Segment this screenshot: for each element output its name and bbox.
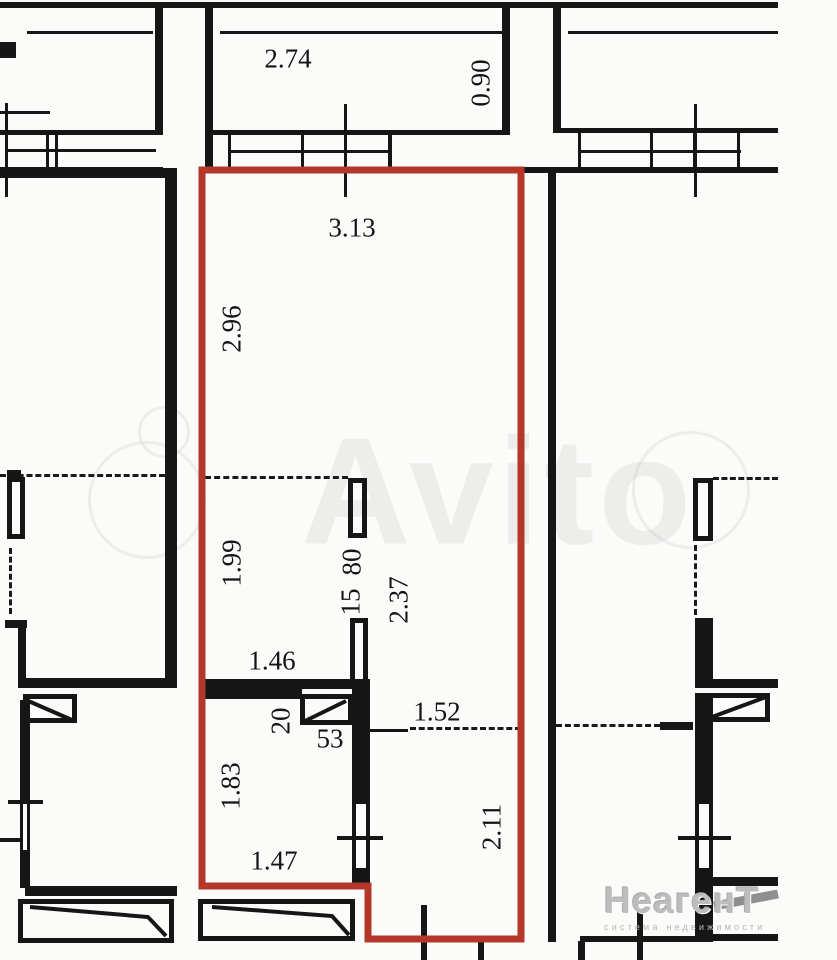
wall-segment [502,2,510,133]
dim-label-room-height-199: 1.99 [219,539,246,586]
dim-label-width-147: 1.47 [250,848,297,875]
dim-label-height-237: 2.37 [386,576,413,623]
window-frame [560,128,778,133]
corner-wedge [0,42,16,58]
window-frame [46,130,49,172]
door-frame [707,693,770,722]
window-frame [301,133,304,172]
wall-segment [165,178,177,688]
wall-segment [352,868,370,886]
dimension-tick [0,838,20,842]
wall-segment [27,31,153,34]
wall-segment [568,31,778,34]
partition-dashed-line [694,545,697,615]
door-frame [23,694,77,723]
window-frame [228,150,391,153]
dimension-tick [368,729,408,732]
dim-label-width-146: 1.46 [248,648,295,675]
wall-segment [0,2,778,8]
dim-label-room-width-313: 3.13 [328,215,375,242]
dim-label-room-height-296: 2.96 [219,305,246,352]
wall-segment [713,679,778,688]
dimension-tick [337,836,383,840]
window-frame [693,478,713,541]
agency-watermark-tagline: система недвижимости [604,922,814,932]
dimension-tick [478,941,484,960]
wall-segment [695,618,713,688]
wall-segment [20,700,30,804]
dim-label-height-211: 2.11 [479,804,506,850]
wall-segment [0,168,177,178]
dim-label-width-152: 1.52 [413,699,460,726]
window-frame [650,133,653,172]
dim-label-depth-090: 0.90 [468,59,495,106]
dimension-tick [678,836,731,840]
wall-segment [350,618,368,688]
avito-logo-circle-small [138,406,190,458]
wall-segment [713,934,778,941]
dimension-tick [578,941,585,960]
dimension-dashed-line [410,727,521,730]
wall-segment [390,167,560,173]
window-frame [578,150,741,153]
wall-segment [660,722,693,730]
window-frame [20,804,23,850]
partition-dashed-line [205,476,348,479]
dim-label-door-width-80: 80 [339,549,366,576]
dim-label-door-width-53: 53 [317,726,344,753]
agency-watermark-name: НеагенТ [604,882,814,919]
wall-segment [352,679,370,804]
dim-label-wall-15: 15 [338,589,365,616]
window-frame [560,167,778,173]
window-frame [27,804,30,850]
window-frame [7,477,25,539]
dimension-tick [344,104,347,197]
balcony-window [18,899,174,943]
dimension-tick [5,103,8,197]
floor-plan-canvas: Avito [0,0,837,960]
window-frame [348,478,367,538]
dimension-tick [694,104,697,197]
window-frame [737,133,740,172]
balcony-window [198,899,355,941]
window-frame [8,149,156,152]
window-frame [578,133,581,172]
dimension-tick [421,905,427,960]
wall-segment [25,886,177,896]
window-frame [55,130,58,172]
wall-segment [20,850,30,888]
partition-dashed-line [556,724,660,727]
dim-label-height-183: 1.83 [218,762,245,809]
partition-dashed-line [713,477,778,480]
window-frame [228,133,231,172]
wall-segment [695,693,713,804]
wall-segment [155,2,163,133]
wall-segment [220,31,502,34]
avito-logo-circle-large [88,441,206,559]
window-frame [212,130,510,135]
wall-segment [205,2,213,170]
wall-segment [553,2,561,133]
dim-label-room-width-top: 2.74 [264,46,311,73]
wall-segment [25,678,177,688]
dim-label-wall-20: 20 [268,708,295,735]
wall-segment [205,688,302,699]
wall-segment [548,170,556,942]
door-frame [300,694,353,725]
agency-watermark: НеагенТ система недвижимости [604,882,814,932]
window-frame [0,130,163,135]
partition-dashed-line [9,548,12,614]
dimension-tick [8,800,43,804]
